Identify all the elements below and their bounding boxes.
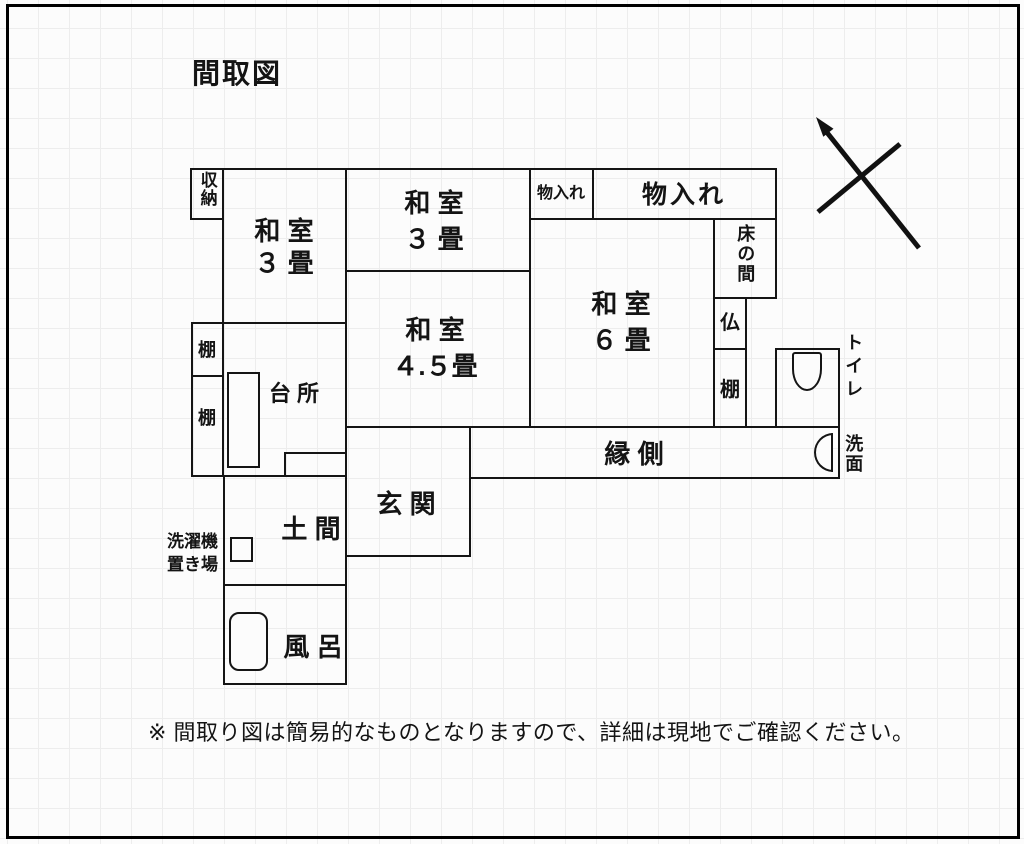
- room-label-shelf-right: 棚: [720, 378, 740, 403]
- room-label-toilet: トイレ: [842, 333, 865, 402]
- room-label-kitchen: 台 所: [269, 380, 319, 408]
- wall-segment: [345, 426, 840, 428]
- page-title: 間取図: [192, 56, 282, 91]
- wall-segment: [345, 270, 531, 272]
- wall-segment: [529, 218, 777, 220]
- wall-segment: [222, 168, 224, 324]
- room-label-bath: 風 呂: [283, 631, 342, 664]
- wall-segment: [775, 348, 840, 350]
- wall-segment: [223, 475, 225, 685]
- north-arrow-icon: [798, 105, 928, 255]
- room-label-entrance: 玄 関: [376, 488, 435, 521]
- bathtub-icon: [229, 612, 268, 671]
- room-label-storage-small: 物入れ: [537, 184, 585, 204]
- wall-segment: [191, 322, 193, 477]
- wall-segment: [469, 477, 840, 479]
- room-label-washitsu45: 和 室 ４.５畳: [392, 312, 477, 384]
- room-label-storage-large: 物入れ: [642, 180, 726, 211]
- wall-segment: [775, 168, 777, 299]
- room-label-closet: 収納: [196, 171, 217, 207]
- wall-segment: [745, 297, 747, 428]
- wall-segment: [529, 168, 531, 428]
- wall-segment: [191, 375, 224, 377]
- room-label-butsudan: 仏: [720, 311, 740, 336]
- wall-segment: [469, 426, 471, 557]
- wall-segment: [345, 168, 347, 685]
- wall-segment: [190, 218, 224, 220]
- wall-segment: [838, 348, 840, 479]
- wall-segment: [191, 475, 347, 477]
- room-label-shelf-left-upper: 棚: [198, 339, 216, 362]
- wall-segment: [222, 322, 224, 477]
- room-label-doma: 土 間: [281, 513, 340, 546]
- room-label-washitsu3-top: 和 室 ３ 畳: [404, 185, 463, 257]
- room-label-engawa: 縁 側: [604, 438, 663, 471]
- wall-segment: [775, 348, 777, 428]
- washing-machine-icon: [230, 537, 253, 562]
- wall-segment: [284, 452, 286, 477]
- disclaimer-note: ※ 間取り図は簡易的なものとなりますので、詳細は現地でご確認ください。: [148, 719, 915, 747]
- wall-segment: [713, 218, 715, 428]
- room-label-washbasin: 洗面: [842, 434, 865, 474]
- wall-segment: [223, 683, 347, 685]
- wall-segment: [190, 168, 192, 220]
- wall-segment: [284, 452, 347, 454]
- room-label-washitsu3-left: 和 室 ３ 畳: [254, 215, 313, 279]
- room-label-tokonoma: 床の間: [734, 224, 757, 284]
- room-label-washitsu6: 和 室 ６ 畳: [591, 286, 650, 358]
- wall-segment: [191, 322, 347, 324]
- wall-segment: [592, 168, 594, 220]
- wall-segment: [223, 584, 347, 586]
- wall-segment: [713, 348, 747, 350]
- wall-segment: [345, 555, 471, 557]
- kitchen-sink-icon: [227, 372, 260, 468]
- room-label-laundry: 洗濯機 置き場: [167, 530, 218, 576]
- room-label-shelf-left-lower: 棚: [198, 407, 216, 430]
- wall-segment: [190, 168, 777, 170]
